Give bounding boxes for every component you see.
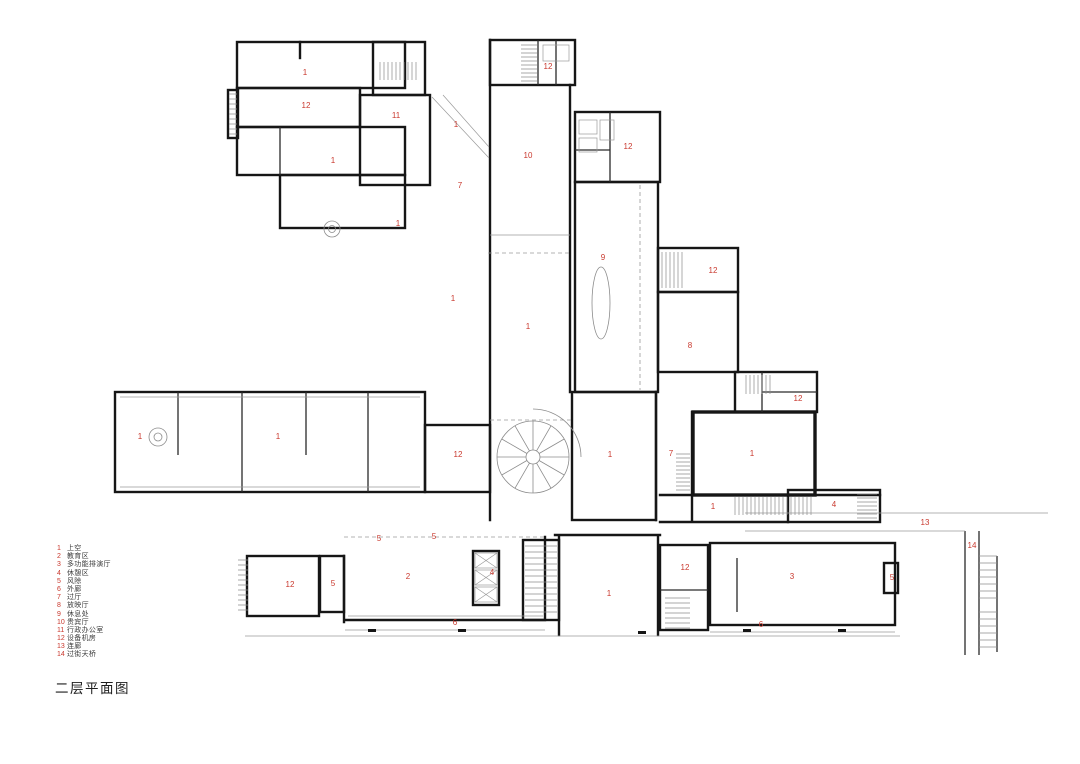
legend: 1上空2教育区3多功能排演厅4休憩区5风除6外廊7过厅8放映厅9休息处10贵宾厅… (57, 545, 111, 660)
legend-item-number: 9 (57, 611, 67, 619)
legend-item: 12设备机房 (57, 635, 111, 643)
legend-item: 4休憩区 (57, 570, 111, 578)
legend-item-number: 13 (57, 643, 67, 651)
legend-item: 11行政办公室 (57, 627, 111, 635)
legend-item-number: 8 (57, 602, 67, 610)
legend-item: 1上空 (57, 545, 111, 553)
legend-item-number: 5 (57, 578, 67, 586)
legend-item-label: 行政办公室 (67, 627, 104, 635)
legend-item-label: 贵宾厅 (67, 619, 89, 627)
legend-item-label: 风除 (67, 578, 82, 586)
floor-plan-drawing (0, 0, 1080, 764)
legend-item-label: 上空 (67, 545, 82, 553)
plan-title: 二层平面图 (55, 677, 130, 697)
walls-medium (178, 40, 997, 655)
legend-item: 8放映厅 (57, 602, 111, 610)
legend-item-number: 10 (57, 619, 67, 627)
legend-item-label: 休憩区 (67, 570, 89, 578)
legend-item-number: 6 (57, 586, 67, 594)
legend-item-number: 7 (57, 594, 67, 602)
walls-extra-heavy (693, 412, 815, 495)
dashed-lines (344, 185, 640, 537)
legend-item-label: 过街天桥 (67, 651, 96, 659)
legend-item: 14过街天桥 (57, 651, 111, 659)
legend-item: 9休息处 (57, 611, 111, 619)
legend-item-number: 2 (57, 553, 67, 561)
detail-lines (120, 45, 1048, 636)
circular-stairs (149, 221, 610, 493)
floor-plan-page: 1121211112110719121181211121711413145512… (0, 0, 1080, 764)
legend-item: 3多功能排演厅 (57, 561, 111, 569)
legend-item: 5风除 (57, 578, 111, 586)
legend-item-number: 1 (57, 545, 67, 553)
legend-item-number: 11 (57, 627, 67, 635)
legend-item-number: 3 (57, 561, 67, 569)
legend-item-number: 14 (57, 651, 67, 659)
legend-item-label: 多功能排演厅 (67, 561, 111, 569)
legend-item-number: 4 (57, 570, 67, 578)
legend-item-number: 12 (57, 635, 67, 643)
legend-item: 10贵宾厅 (57, 619, 111, 627)
legend-item: 6外廊 (57, 586, 111, 594)
legend-item-label: 休息处 (67, 611, 89, 619)
legend-item-label: 外廊 (67, 586, 82, 594)
legend-item-label: 放映厅 (67, 602, 89, 610)
